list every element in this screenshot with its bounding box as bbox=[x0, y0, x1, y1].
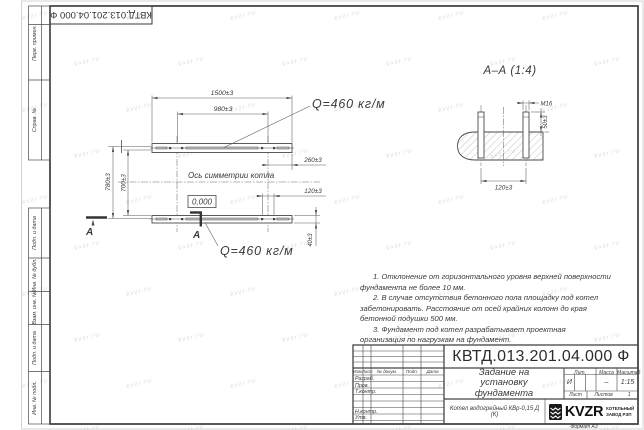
dim-700: 700±3 bbox=[121, 150, 152, 216]
bottom-beam bbox=[150, 216, 294, 224]
list-label: Лист bbox=[564, 391, 587, 399]
margin-label-perv-primen: Перв. примен. bbox=[32, 25, 38, 61]
lit-value: И bbox=[564, 375, 575, 392]
svg-text:980±3: 980±3 bbox=[214, 106, 233, 113]
col-header-list: Лист bbox=[362, 369, 371, 374]
logo-cell: KVZR КОТЕЛЬНЫЙ ЗАВОД РЭП bbox=[545, 399, 638, 424]
listov-cell: Листов 1 bbox=[587, 391, 638, 399]
note-2: 2. В случае отсутствия бетонного пола пл… bbox=[360, 293, 612, 325]
note-3: 3. Фундамент под котел разрабатывает про… bbox=[360, 325, 612, 346]
row-label-utv: Утв. bbox=[353, 415, 367, 421]
load-label-top: Q=460 кг/м bbox=[224, 97, 385, 148]
listov-value: 1 bbox=[628, 392, 631, 398]
logo-subtitle: КОТЕЛЬНЫЙ ЗАВОД РЭП bbox=[606, 406, 634, 417]
dim-980: 980±3 bbox=[178, 106, 269, 143]
row-label-nkontr: Н.контр. bbox=[353, 409, 377, 415]
margin-label-inv-dubl: Инв. № дубл. bbox=[32, 258, 38, 291]
drawing-sheet: kvzr.rukvzr.rukvzr.rukvzr.rukvzr.rukvzr.… bbox=[0, 0, 644, 430]
dim-120-section: 120±3 bbox=[481, 168, 526, 192]
dim-40: 40±3 bbox=[294, 207, 320, 247]
load-label-bottom: Q=460 кг/м bbox=[205, 223, 293, 259]
svg-text:1500±3: 1500±3 bbox=[211, 90, 234, 97]
margin-label-podp-data-1: Подп. и дата bbox=[32, 216, 38, 250]
svg-text:40±3: 40±3 bbox=[308, 233, 314, 247]
listov-label: Листов bbox=[595, 392, 613, 398]
svg-text:120±3: 120±3 bbox=[304, 188, 322, 195]
svg-text:50±3: 50±3 bbox=[543, 115, 549, 129]
note-1: 1. Отклонение от горизонтального уровня … bbox=[360, 272, 612, 293]
corner-stamp: КВТД.013.201.04.000 Ф bbox=[50, 6, 152, 24]
svg-text:Q=460 кг/м: Q=460 кг/м bbox=[312, 97, 385, 111]
margin-label-sprav-no: Справ. № bbox=[32, 108, 38, 133]
product-name: Котел водогрейный КВр-0,15 Д (К) bbox=[444, 399, 545, 424]
col-header-data: Дата bbox=[421, 369, 444, 374]
row-label-prov: Пров. bbox=[353, 383, 369, 389]
axis-label: Ось симметрии котла bbox=[188, 171, 275, 180]
svg-text:780±3: 780±3 bbox=[105, 173, 112, 191]
concrete-block bbox=[458, 132, 544, 160]
svg-text:М16: М16 bbox=[541, 102, 553, 108]
section-mark-left: А bbox=[85, 218, 107, 239]
logo-subtitle-line2: ЗАВОД РЭП bbox=[606, 412, 634, 418]
svg-text:Q=460 кг/м: Q=460 кг/м bbox=[220, 244, 293, 258]
level-mark: 0,000 bbox=[188, 196, 216, 208]
dim-1500: 1500±3 bbox=[152, 90, 292, 143]
dim-m16: М16 bbox=[517, 101, 553, 111]
col-header-doc: № докум. bbox=[371, 369, 403, 374]
format-label: Формат А3 bbox=[549, 424, 619, 430]
margin-label-podp-data-2: Подп. и дата bbox=[32, 331, 38, 365]
doc-title-text: Задание на установку фундамента bbox=[465, 368, 543, 399]
dim-260: 260±3 bbox=[262, 154, 326, 170]
section-view: А–А (1:4) М16 bbox=[458, 65, 553, 192]
technical-notes: 1. Отклонение от горизонтального уровня … bbox=[360, 272, 612, 346]
margin-label-vzam-inv: Взам. инв. № bbox=[32, 291, 38, 324]
svg-text:260±3: 260±3 bbox=[303, 157, 322, 164]
col-header-podp: Подп. bbox=[403, 369, 421, 374]
svg-text:А: А bbox=[192, 230, 200, 241]
svg-text:0,000: 0,000 bbox=[192, 198, 213, 207]
masshtab-value: 1:15 bbox=[617, 375, 638, 392]
margin-label-inv-podl: Инв. № подл. bbox=[32, 381, 38, 414]
section-title: А–А (1:4) bbox=[482, 65, 536, 77]
logo-text: KVZR bbox=[565, 404, 603, 420]
svg-text:700±3: 700±3 bbox=[121, 174, 128, 192]
title-block-title: Задание на установку фундамента bbox=[444, 368, 564, 399]
corner-stamp-number: КВТД.013.201.04.000 Ф bbox=[50, 10, 152, 21]
kvzr-logo-icon bbox=[549, 404, 562, 420]
plan-view: 1500±3 980±3 780±3 bbox=[85, 90, 385, 258]
row-label-tkontr: Т.контр. bbox=[353, 389, 376, 395]
row-label-razrab: Разраб. bbox=[353, 376, 374, 382]
massa-value: – bbox=[596, 375, 617, 392]
svg-text:А: А bbox=[85, 227, 93, 238]
svg-text:120±3: 120±3 bbox=[495, 185, 513, 192]
title-block-doc-number: КВТД.013.201.04.000 Ф bbox=[444, 345, 638, 368]
